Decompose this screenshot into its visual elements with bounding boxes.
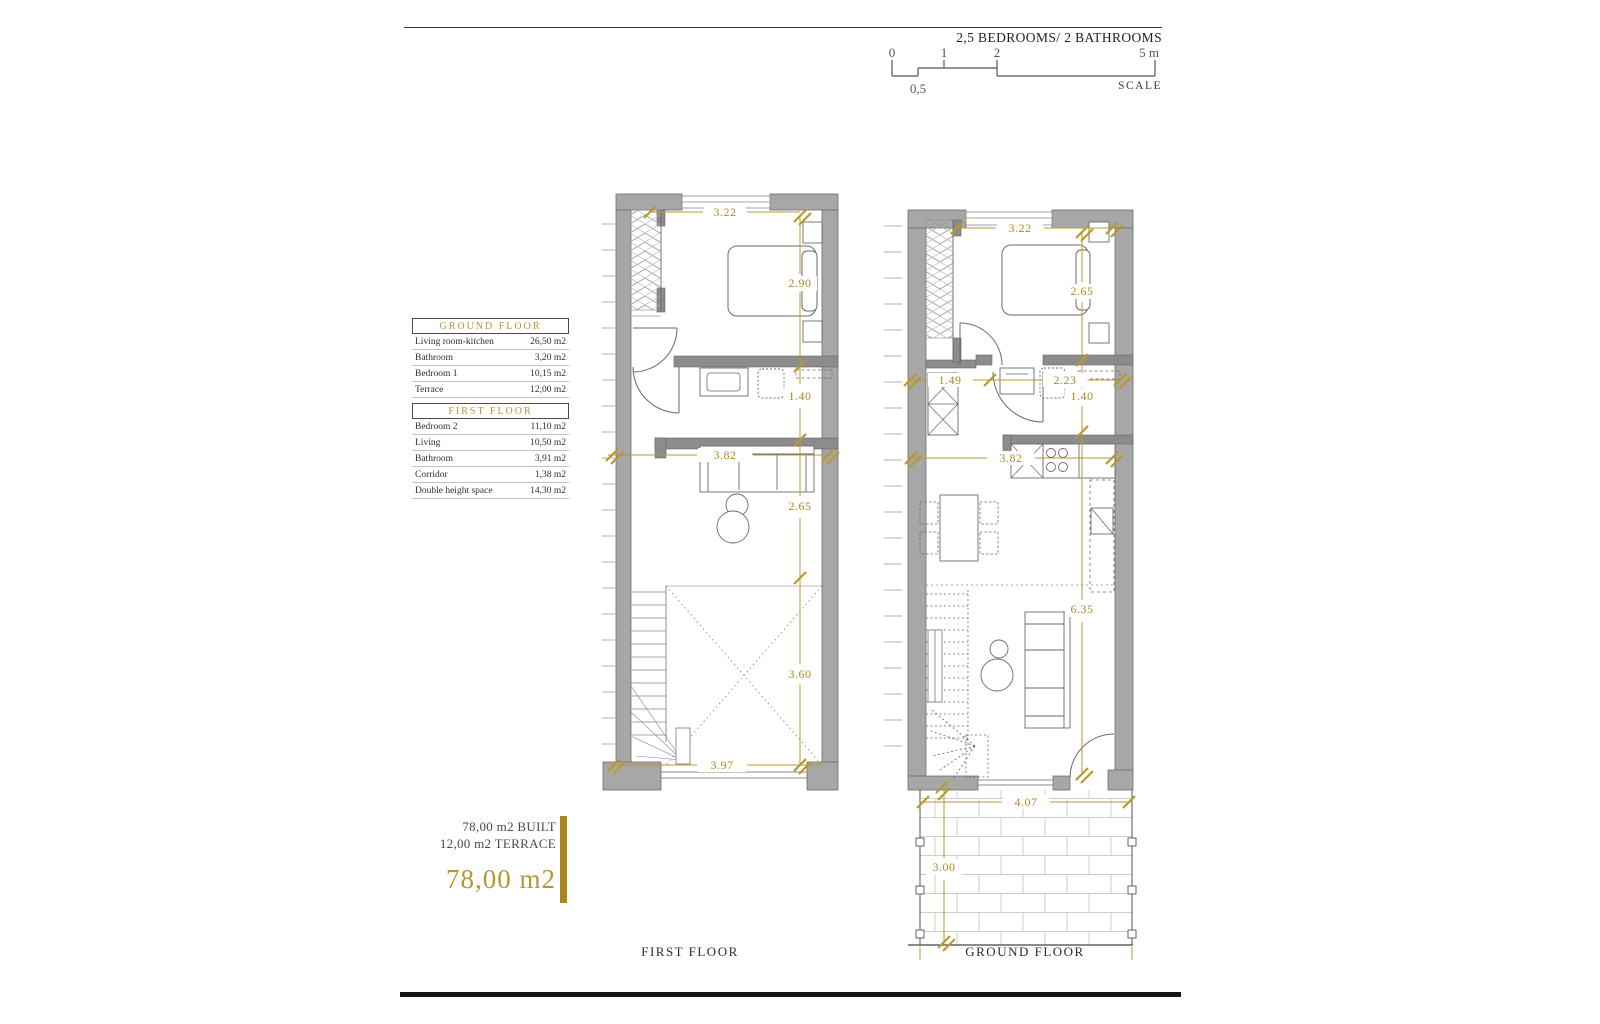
scale-tick-2: 2 — [994, 46, 1001, 60]
dim-width-bottom: 3.97 — [711, 758, 734, 772]
area-summary: 78,00 m2 BUILT 12,00 m2 TERRACE — [330, 818, 556, 852]
row-value: 26,50 m2 — [530, 337, 566, 347]
bedroom-door-arc — [633, 328, 677, 372]
legend-row: Terrace12,00 m2 — [412, 382, 569, 398]
row-value: 12,00 m2 — [530, 385, 566, 395]
ground-floor-caption: GROUND FLOOR — [905, 944, 1145, 960]
dim-bathroom-height: 1.40 — [1071, 389, 1094, 403]
legend-row: Bathroom3,91 m2 — [412, 451, 569, 467]
legend-row: Double height space14,30 m2 — [412, 483, 569, 499]
kitchen-counter-right — [1090, 480, 1114, 592]
dining-table — [940, 495, 978, 561]
legend-ground-title: GROUND FLOOR — [412, 318, 569, 334]
scale-tick-1: 1 — [941, 46, 948, 60]
dim-living-width: 3.82 — [714, 448, 737, 462]
bed — [1002, 245, 1090, 315]
party-wall-hatch — [602, 224, 615, 744]
bathroom-sink — [1000, 368, 1034, 394]
legend-row: Living room-kitchen26,50 m2 — [412, 334, 569, 350]
dim-bathroom-width: 2.23 — [1054, 373, 1077, 387]
legend-row: Corridor1,38 m2 — [412, 467, 569, 483]
row-value: 14,30 m2 — [530, 486, 566, 496]
built-area-line: 78,00 m2 BUILT — [330, 818, 556, 835]
dim-bedroom-height: 2.65 — [1071, 284, 1094, 298]
bathroom-sink — [700, 368, 748, 396]
dim-entry-width: 1.49 — [939, 373, 962, 387]
window-bottom — [978, 780, 1053, 785]
first-floor-plan: 3.22 2.90 1.40 3.82 2.65 3.60 3.97 — [600, 188, 840, 804]
row-label: Double height space — [415, 486, 493, 496]
scale-label: SCALE — [1070, 80, 1162, 92]
row-value: 3,91 m2 — [535, 454, 566, 464]
area-legend: GROUND FLOOR Living room-kitchen26,50 m2… — [412, 318, 569, 499]
corridor-door-arc — [633, 367, 679, 413]
legend-row: Bedroom 110,15 m2 — [412, 366, 569, 382]
row-value: 10,50 m2 — [530, 438, 566, 448]
row-label: Living room-kitchen — [415, 337, 494, 347]
row-label: Living — [415, 438, 440, 448]
legend-row: Bedroom 211,10 m2 — [412, 419, 569, 435]
sofa — [1025, 612, 1070, 728]
terrace-area-line: 12,00 m2 TERRACE — [330, 835, 556, 852]
staircase-lower — [631, 586, 690, 764]
dim-bathroom-height: 1.40 — [789, 389, 812, 403]
row-label: Bedroom 2 — [415, 422, 457, 432]
dim-living-height: 6.35 — [1071, 602, 1094, 616]
scale-bar: 0 1 2 5 m 0,5 — [865, 46, 1165, 102]
legend-first-title: FIRST FLOOR — [412, 403, 569, 419]
gold-accent-bar — [560, 816, 567, 903]
scale-tick-0: 0 — [889, 46, 896, 60]
ground-floor-plan: 3.22 2.65 1.49 2.23 1.40 3.82 6.35 4.07 … — [880, 190, 1140, 962]
floorplan-sheet: 2,5 BEDROOMS/ 2 BATHROOMS 0 1 2 5 m 0,5 … — [0, 0, 1600, 1024]
dim-kitchen-width: 3.82 — [1000, 451, 1023, 465]
party-wall-hatch — [884, 226, 902, 746]
row-label: Bedroom 1 — [415, 369, 457, 379]
row-value: 1,38 m2 — [535, 470, 566, 480]
dim-terrace-width: 4.07 — [1015, 795, 1038, 809]
row-label: Bathroom — [415, 353, 453, 363]
dim-width-top: 3.22 — [1009, 221, 1032, 235]
scale-tick-5: 5 m — [1139, 46, 1159, 60]
row-value: 10,15 m2 — [530, 369, 566, 379]
row-value: 11,10 m2 — [530, 422, 566, 432]
scale-tick-half: 0,5 — [910, 81, 926, 96]
row-label: Bathroom — [415, 454, 453, 464]
legend-row: Bathroom3,20 m2 — [412, 350, 569, 366]
coffee-tables — [717, 494, 749, 543]
header-rule — [404, 27, 1162, 28]
dim-living-height: 2.65 — [789, 499, 812, 513]
row-value: 3,20 m2 — [535, 353, 566, 363]
dim-terrace-height: 3.00 — [933, 860, 956, 874]
row-label: Corridor — [415, 470, 448, 480]
dim-void-height: 3.60 — [789, 667, 812, 681]
nightstands — [1089, 222, 1109, 343]
page-title: 2,5 BEDROOMS/ 2 BATHROOMS — [700, 30, 1162, 46]
footer-bar — [400, 992, 1181, 997]
total-area: 78,00 m2 — [330, 864, 556, 895]
dim-bedroom-height: 2.90 — [789, 276, 812, 290]
coffee-tables — [981, 640, 1013, 691]
scale-bar-line — [892, 60, 1155, 76]
window-bottom — [661, 772, 807, 778]
stair-stringer — [928, 630, 942, 702]
dim-width-top: 3.22 — [714, 205, 737, 219]
legend-row: Living10,50 m2 — [412, 435, 569, 451]
row-label: Terrace — [415, 385, 443, 395]
staircase-upper — [631, 210, 661, 316]
staircase-upper — [926, 220, 953, 360]
toilet — [758, 369, 784, 398]
first-floor-caption: FIRST FLOOR — [580, 944, 800, 960]
